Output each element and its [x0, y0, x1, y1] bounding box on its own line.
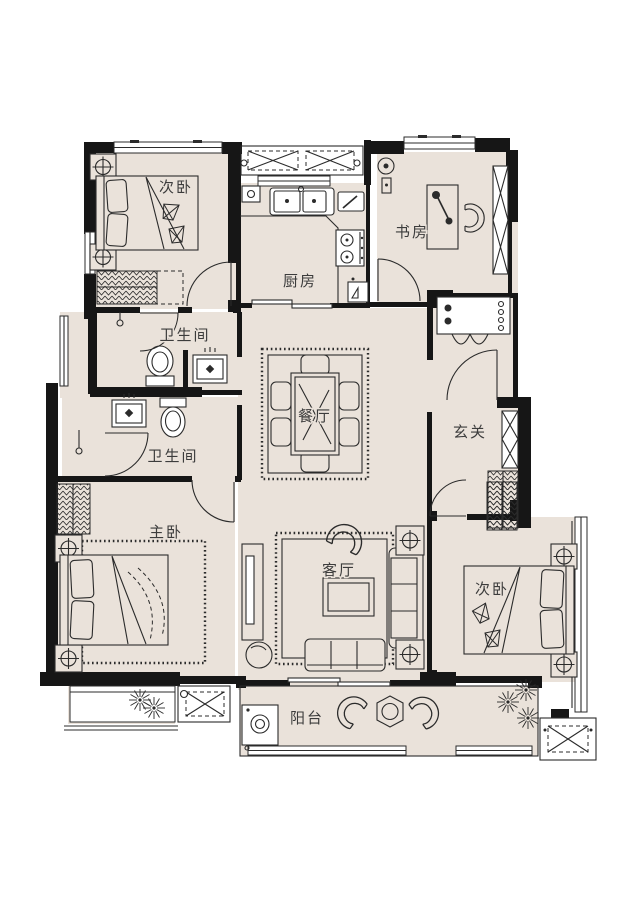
room-label-bath-lower: 卫生间	[147, 448, 198, 465]
room-label-kitchen: 厨房	[283, 273, 317, 290]
wardrobe-icon	[487, 482, 517, 530]
room-label-master: 主卧	[149, 524, 183, 541]
window-bath-left	[60, 316, 68, 386]
toilet-icon	[146, 346, 174, 386]
ac-platform-top	[241, 146, 363, 175]
desk-icon	[427, 185, 458, 249]
plant-pot-icon	[246, 642, 272, 668]
master-wardrobe-icon	[57, 484, 90, 534]
room-label-balcony: 阳台	[290, 710, 324, 727]
window-study	[404, 135, 475, 149]
tv-cabinet-icon	[242, 544, 263, 640]
balcony-table-icon	[377, 696, 403, 727]
floor-bath-lower	[62, 397, 240, 480]
room-label-living: 客厅	[322, 562, 356, 579]
room-label-bedroom-bottom: 次卧	[475, 581, 509, 598]
bed-icon	[464, 566, 574, 654]
ac-platform-bottom-right	[540, 718, 596, 760]
water-heater-icon	[242, 186, 260, 202]
ac-platform-bottom-left	[178, 686, 230, 722]
foyer-closet-icon	[502, 411, 518, 468]
bed-icon	[60, 555, 168, 645]
room-label-dining: 餐厅	[298, 408, 332, 425]
room-label-study: 书房	[395, 224, 429, 241]
coffee-table-icon	[323, 578, 374, 616]
stove-icon	[336, 230, 364, 266]
room-label-foyer: 玄关	[453, 424, 487, 441]
washing-machine-icon	[242, 705, 278, 750]
room-label-bedroom-top: 次卧	[159, 179, 193, 196]
bookshelf-icon	[493, 166, 508, 274]
room-label-bath-upper: 卫生间	[159, 327, 210, 344]
window-bedroom-top	[114, 140, 222, 153]
floor-plan: 次卧	[0, 0, 640, 920]
toilet-icon	[160, 398, 186, 437]
window-kitchen	[258, 176, 330, 186]
